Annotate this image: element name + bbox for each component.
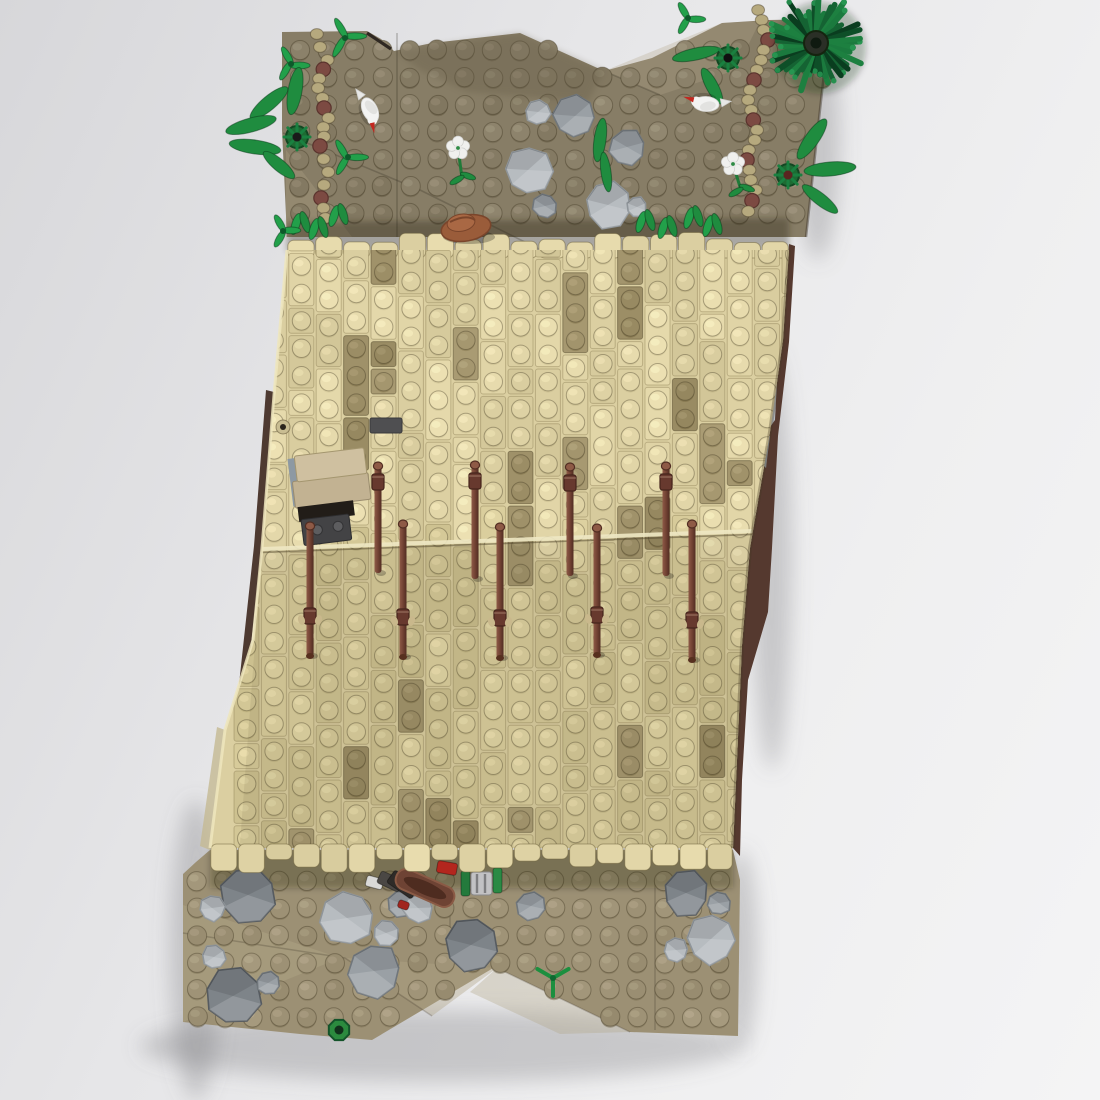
rock bbox=[665, 871, 706, 916]
green-round-plate bbox=[329, 1020, 349, 1040]
plant-sprig bbox=[676, 1, 706, 35]
upper-ground-plate bbox=[282, 5, 832, 252]
scene-svg bbox=[0, 0, 1100, 1100]
lego-moc-aerial-render bbox=[0, 0, 1100, 1100]
waterfall-wall bbox=[210, 214, 807, 933]
rock bbox=[257, 971, 279, 993]
rock bbox=[664, 938, 687, 962]
rock bbox=[374, 920, 398, 945]
rock bbox=[707, 892, 730, 914]
